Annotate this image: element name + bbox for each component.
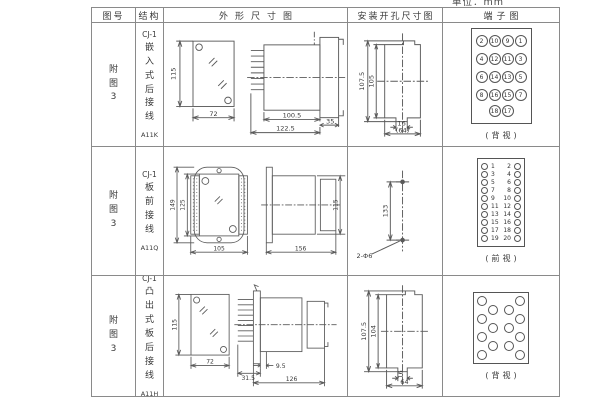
terminal-circle: [514, 211, 521, 218]
dim-label: 31.5: [241, 375, 255, 382]
terminal-circle: [481, 179, 488, 186]
terminal-number: 10: [503, 195, 511, 202]
terminal-circle: [515, 314, 525, 324]
terminal-circle: 16: [489, 89, 501, 101]
dim-label: 122.5: [276, 124, 295, 132]
terminal-circle: [504, 341, 514, 351]
fig-no-cell-a11k: 附图3: [92, 23, 136, 147]
install-drawing-cell-a11q: 133 2-Φ6: [348, 147, 443, 276]
terminal-circle: 9: [502, 35, 514, 47]
terminal-number: 6: [507, 179, 511, 186]
terminal-circle: [504, 323, 514, 333]
terminal-circle: 10: [489, 35, 501, 47]
terminal-panel-front-view: 1357911131517192468101214161820: [477, 158, 525, 247]
dim-label: 156: [294, 245, 306, 252]
terminal-number: 20: [503, 235, 511, 242]
structure-cell-a11h: CJ-1 凸出式板后接线 A11H: [136, 276, 164, 396]
fig-no-text: 附图3: [107, 315, 120, 357]
terminal-number: 5: [491, 179, 495, 186]
terminal-circle: 6: [476, 71, 488, 83]
install-drawing-a11h: 107.5 104 16 64: [349, 279, 442, 393]
dim-label: 149: [169, 199, 176, 211]
structure-type: 板前接线: [143, 182, 156, 238]
terminal-circle: 4: [476, 53, 488, 65]
terminal-circle: [481, 235, 488, 242]
terminal-number: 2: [507, 163, 511, 170]
dim-label: (64): [395, 126, 408, 134]
terminal-circle: 15: [502, 89, 514, 101]
terminal-circle: 13: [502, 71, 514, 83]
terminal-panel-rear-view: 210914121136141358161571817: [471, 28, 532, 124]
terminal-number: 15: [491, 219, 499, 226]
terminal-circle: 2: [476, 35, 488, 47]
leader-line: [371, 241, 399, 254]
dim-label: 107.5: [359, 322, 367, 341]
terminal-circle: [514, 219, 521, 226]
header-fig-no: 图号: [92, 8, 136, 23]
install-drawing-a11k: 107.5 105 16 (64): [349, 29, 442, 141]
terminal-circle: 8: [476, 89, 488, 101]
outline-drawing-a11q: 149 125 105 156 115: [165, 153, 347, 269]
dim-label: 72: [209, 109, 217, 117]
dim-label: 133: [381, 205, 389, 218]
terminal-circle: [514, 171, 521, 178]
header-install: 安装开孔尺寸图: [348, 8, 443, 23]
terminal-number: 4: [507, 171, 511, 178]
dim-label: 115: [171, 319, 178, 331]
terminal-circle: [481, 163, 488, 170]
structure-code: A11H: [141, 390, 159, 396]
terminal-circle: 3: [515, 53, 527, 65]
relay-model: CJ-1: [142, 170, 157, 179]
terminal-circle: [514, 179, 521, 186]
structure-cell-a11q: CJ-1 板前接线 A11Q: [136, 147, 164, 276]
terminal-circle: [488, 305, 498, 315]
dim-label: 104: [369, 325, 377, 338]
header-structure: 结构: [136, 8, 164, 23]
terminal-number: 14: [503, 211, 511, 218]
dim-label: 126: [285, 376, 297, 383]
terminal-circle: [477, 314, 487, 324]
terminal-number: 7: [491, 187, 495, 194]
fig-no-cell-a11q: 附图3: [92, 147, 136, 276]
dim-height: [176, 41, 193, 106]
dim-label: 115: [332, 199, 339, 211]
terminal-number: 18: [503, 227, 511, 234]
dim-step: [253, 352, 273, 369]
terminal-pins: [237, 300, 253, 342]
dim-label: 100.5: [282, 111, 301, 119]
terminal-number: 16: [503, 219, 511, 226]
fig-no-text: 附图3: [107, 190, 120, 232]
structure-type: 凸出式板后接线: [143, 286, 156, 384]
dim-label: 105: [367, 74, 375, 87]
outline-drawing-a11h: 115 72 9.5 31.5 126: [165, 279, 347, 393]
fig-no-cell-a11h: 附图3: [92, 276, 136, 396]
terminal-number: 3: [491, 171, 495, 178]
structure-type: 嵌入式后接线: [143, 42, 156, 126]
terminal-circle: [481, 187, 488, 194]
terminal-cell-a11k: 210914121136141358161571817 (背视): [443, 23, 559, 147]
outline-drawing-a11k: 115 72 100.5 35 122.5: [165, 29, 347, 141]
terminal-circle: 18: [489, 105, 501, 117]
front-view: [176, 41, 234, 121]
terminal-circle: [481, 195, 488, 202]
relay-model: CJ-1: [142, 30, 157, 39]
terminal-circle: [481, 219, 488, 226]
terminal-circle: [488, 323, 498, 333]
outline-drawing-cell-a11q: 149 125 105 156 115: [164, 147, 348, 276]
terminal-number: 1: [491, 163, 495, 170]
dim-label: 72: [206, 359, 214, 366]
terminal-circle: [514, 235, 521, 242]
terminal-circle: 5: [515, 71, 527, 83]
structure-cell-a11k: CJ-1 嵌入式后接线 A11K: [136, 23, 164, 147]
document-page: 单位：mm 图号 结构 外形尺寸图 安装开孔尺寸图 端子图 附图3 CJ-1 嵌…: [0, 0, 600, 400]
terminal-circle: [488, 341, 498, 351]
dim-label: 125: [179, 199, 186, 211]
structure-code: A11Q: [141, 244, 159, 252]
terminal-circle: [477, 332, 487, 342]
side-view: [234, 285, 336, 386]
terminal-pins: [250, 50, 263, 89]
terminal-circle: 1: [515, 35, 527, 47]
terminal-circle: 12: [489, 53, 501, 65]
outline-drawing-cell-a11k: 115 72 100.5 35 122.5: [164, 23, 348, 147]
terminal-circle: [481, 203, 488, 210]
terminal-circle: [514, 187, 521, 194]
terminal-circle: [514, 227, 521, 234]
hatch-marks: [214, 196, 222, 204]
dim-label: 105: [213, 245, 225, 252]
spec-table: 图号 结构 外形尺寸图 安装开孔尺寸图 端子图 附图3 CJ-1 嵌入式后接线 …: [91, 7, 560, 397]
hatch-marks: [199, 307, 217, 337]
terminal-number: 17: [491, 227, 499, 234]
header-outline: 外形尺寸图: [164, 8, 348, 23]
header-terminal: 端子图: [443, 8, 559, 23]
terminal-circle: 14: [489, 71, 501, 83]
terminal-strip-dots: [193, 178, 245, 233]
terminal-circle: 17: [502, 105, 514, 117]
structure-code: A11K: [141, 131, 158, 139]
terminal-circle: [481, 211, 488, 218]
terminal-circle: 7: [515, 89, 527, 101]
dim-label: 107.5: [358, 71, 366, 90]
view-label: (前视): [482, 253, 519, 264]
outline-drawing-cell-a11h: 115 72 9.5 31.5 126: [164, 276, 348, 396]
terminal-cell-a11q: 1357911131517192468101214161820 (前视): [443, 147, 559, 276]
terminal-circle: [481, 227, 488, 234]
install-drawing-cell-a11h: 107.5 104 16 64: [348, 276, 443, 396]
terminal-circle: [515, 332, 525, 342]
terminal-cell-a11h: (背视): [443, 276, 559, 396]
dim-label: 115: [169, 67, 177, 79]
fig-no-text: 附图3: [107, 64, 120, 106]
terminal-circle: [515, 350, 525, 360]
install-drawing-a11q: 133 2-Φ6: [349, 153, 442, 269]
hatch-marks: [208, 57, 226, 88]
terminal-circle: [504, 305, 514, 315]
terminal-circle: [514, 163, 521, 170]
centerlines: [380, 285, 427, 385]
view-label: (背视): [482, 370, 519, 381]
terminal-circle: [481, 171, 488, 178]
terminal-circle: 11: [502, 53, 514, 65]
hole-spec-label: 2-Φ6: [356, 252, 372, 260]
terminal-circle: [515, 296, 525, 306]
dim-label: 9.5: [275, 363, 285, 370]
terminal-number: 19: [491, 235, 499, 242]
view-label: (背视): [482, 130, 519, 141]
front-view: [175, 294, 229, 369]
terminal-panel-rear-view: [473, 292, 529, 364]
terminal-number: 11: [491, 203, 499, 210]
terminal-number: 9: [491, 195, 495, 202]
terminal-number: 12: [503, 203, 511, 210]
dim-label: 35: [326, 117, 334, 125]
terminal-circle: [477, 296, 487, 306]
install-drawing-cell-a11k: 107.5 105 16 (64): [348, 23, 443, 147]
relay-model: CJ-1: [142, 276, 157, 283]
terminal-number: 8: [507, 187, 511, 194]
terminal-circle: [514, 203, 521, 210]
terminal-number: 13: [491, 211, 499, 218]
dim-pins-depth: [237, 345, 260, 377]
terminal-circle: [514, 195, 521, 202]
terminal-circle: [477, 350, 487, 360]
top-hook: [254, 285, 258, 291]
dim-label: 64: [400, 378, 408, 386]
